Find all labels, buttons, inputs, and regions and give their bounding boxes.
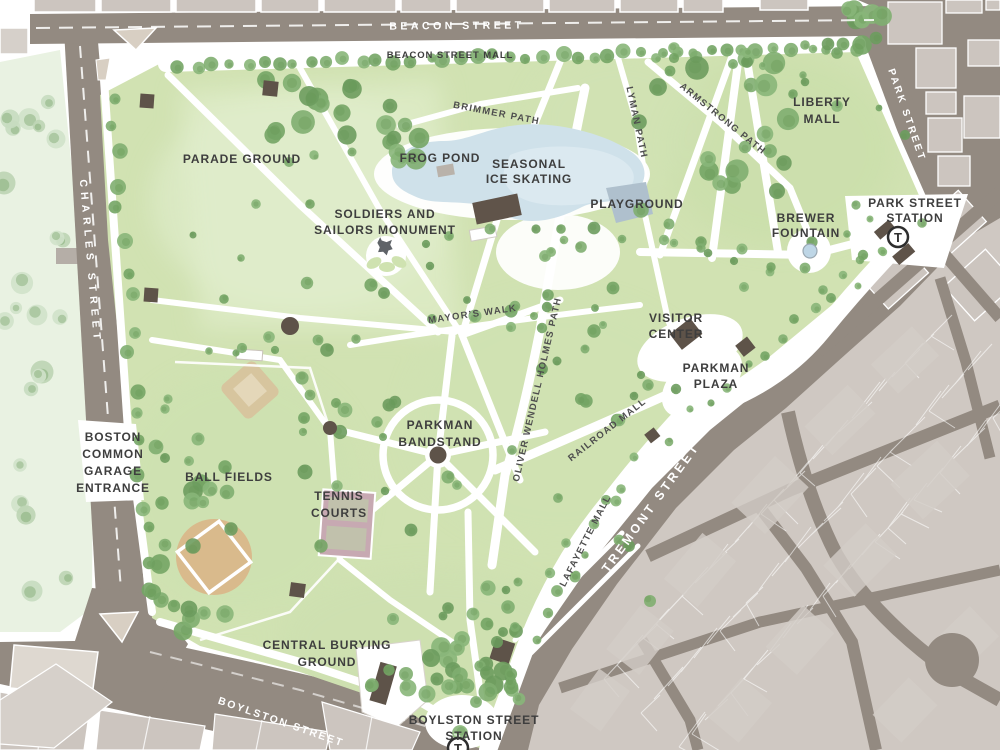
svg-text:SAILORS MONUMENT: SAILORS MONUMENT <box>314 223 456 237</box>
svg-text:PLAYGROUND: PLAYGROUND <box>590 197 683 211</box>
svg-text:PARKMAN: PARKMAN <box>683 361 750 375</box>
svg-text:ENTRANCE: ENTRANCE <box>76 481 150 495</box>
svg-text:STATION: STATION <box>886 211 943 225</box>
svg-text:SEASONAL: SEASONAL <box>492 157 566 171</box>
svg-text:GARAGE: GARAGE <box>84 464 142 478</box>
svg-text:BALL FIELDS: BALL FIELDS <box>185 470 273 484</box>
svg-text:CENTER: CENTER <box>649 327 704 341</box>
svg-text:BANDSTAND: BANDSTAND <box>398 435 481 449</box>
svg-text:SOLDIERS AND: SOLDIERS AND <box>334 207 435 221</box>
svg-text:GROUND: GROUND <box>298 655 357 669</box>
svg-text:COMMON: COMMON <box>82 447 143 461</box>
svg-text:BOYLSTON STREET: BOYLSTON STREET <box>409 713 540 727</box>
svg-text:BEACON STREET MALL: BEACON STREET MALL <box>387 50 514 61</box>
svg-text:PARKMAN: PARKMAN <box>407 418 474 432</box>
svg-text:ICE SKATING: ICE SKATING <box>486 172 572 186</box>
svg-text:MALL: MALL <box>804 112 841 126</box>
svg-text:BOSTON: BOSTON <box>85 430 142 444</box>
svg-text:BREWER: BREWER <box>777 211 836 225</box>
svg-text:LIBERTY: LIBERTY <box>793 95 851 109</box>
svg-text:PARK STREET: PARK STREET <box>868 196 962 210</box>
svg-text:CENTRAL BURYING: CENTRAL BURYING <box>263 638 392 652</box>
svg-text:BEACON STREET: BEACON STREET <box>389 19 524 32</box>
svg-text:FROG POND: FROG POND <box>400 151 481 165</box>
svg-text:PLAZA: PLAZA <box>694 377 739 391</box>
svg-text:COURTS: COURTS <box>311 506 367 520</box>
svg-text:PARADE GROUND: PARADE GROUND <box>183 152 301 166</box>
svg-text:TENNIS: TENNIS <box>314 489 363 503</box>
svg-text:T: T <box>894 230 902 245</box>
svg-text:STATION: STATION <box>445 729 502 743</box>
svg-text:FOUNTAIN: FOUNTAIN <box>772 226 840 240</box>
svg-text:VISITOR: VISITOR <box>649 311 703 325</box>
